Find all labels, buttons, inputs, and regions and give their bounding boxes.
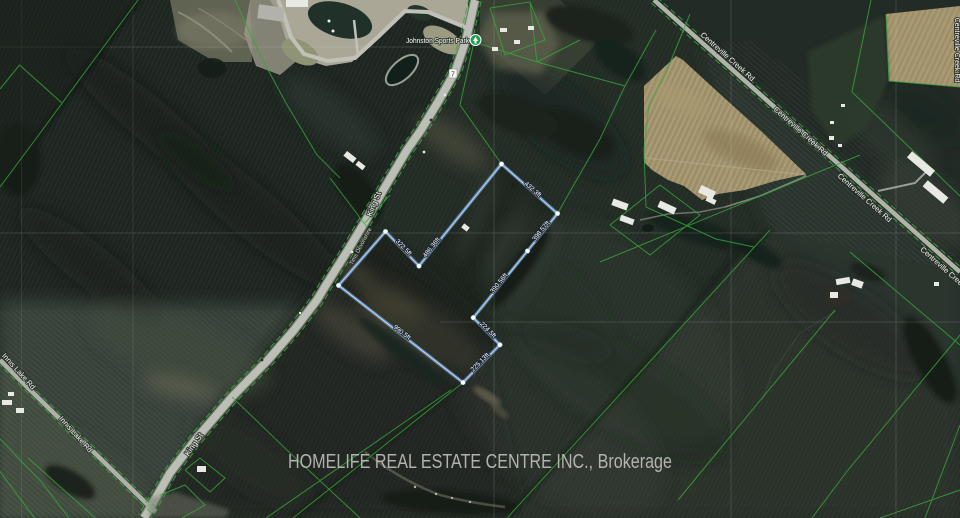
svg-text:7: 7 <box>451 72 455 79</box>
svg-text:Johnston Sports Park: Johnston Sports Park <box>406 36 469 45</box>
svg-text:HOMELIFE REAL ESTATE CENTRE IN: HOMELIFE REAL ESTATE CENTRE INC., Broker… <box>288 450 672 473</box>
svg-text:Centreville Creek Rd: Centreville Creek Rd <box>953 18 960 83</box>
